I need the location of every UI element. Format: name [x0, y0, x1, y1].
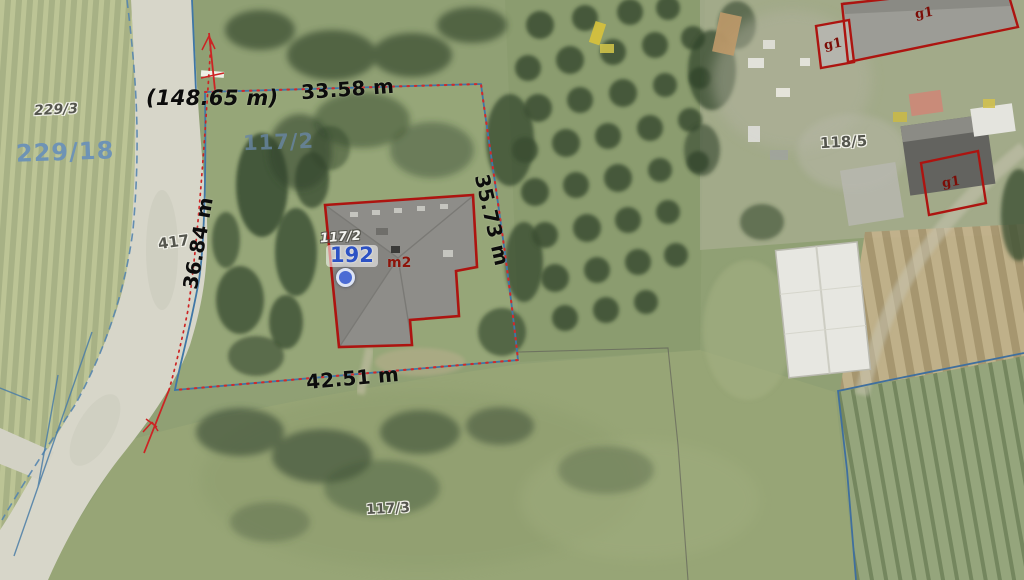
label-parcel-229-3: 229/3 — [34, 102, 79, 118]
label-parcel-118-5: 118/5 — [820, 134, 868, 151]
label-g1-long: g1 — [914, 6, 934, 21]
label-parcel-117-2: 117/2 — [243, 131, 315, 154]
label-parcel-417: 417 — [157, 233, 190, 252]
label-g1-small: g1 — [823, 37, 843, 53]
label-parcel-229-18: 229/18 — [16, 138, 115, 165]
label-building-use-m2: m2 — [387, 256, 411, 270]
label-g1-east: g1 — [941, 175, 961, 190]
label-parcel-117-3: 117/3 — [366, 501, 411, 517]
label-measure-north: 33.58 m — [300, 76, 394, 102]
label-point-192: 192 — [326, 245, 378, 267]
greenhouse — [776, 242, 871, 378]
point-marker-192[interactable] — [336, 268, 355, 287]
label-measure-road-total: (148.65 m) — [146, 88, 278, 109]
map-viewport[interactable]: 229/3 229/18 (148.65 m) 33.58 m 36.84 m … — [0, 0, 1024, 580]
